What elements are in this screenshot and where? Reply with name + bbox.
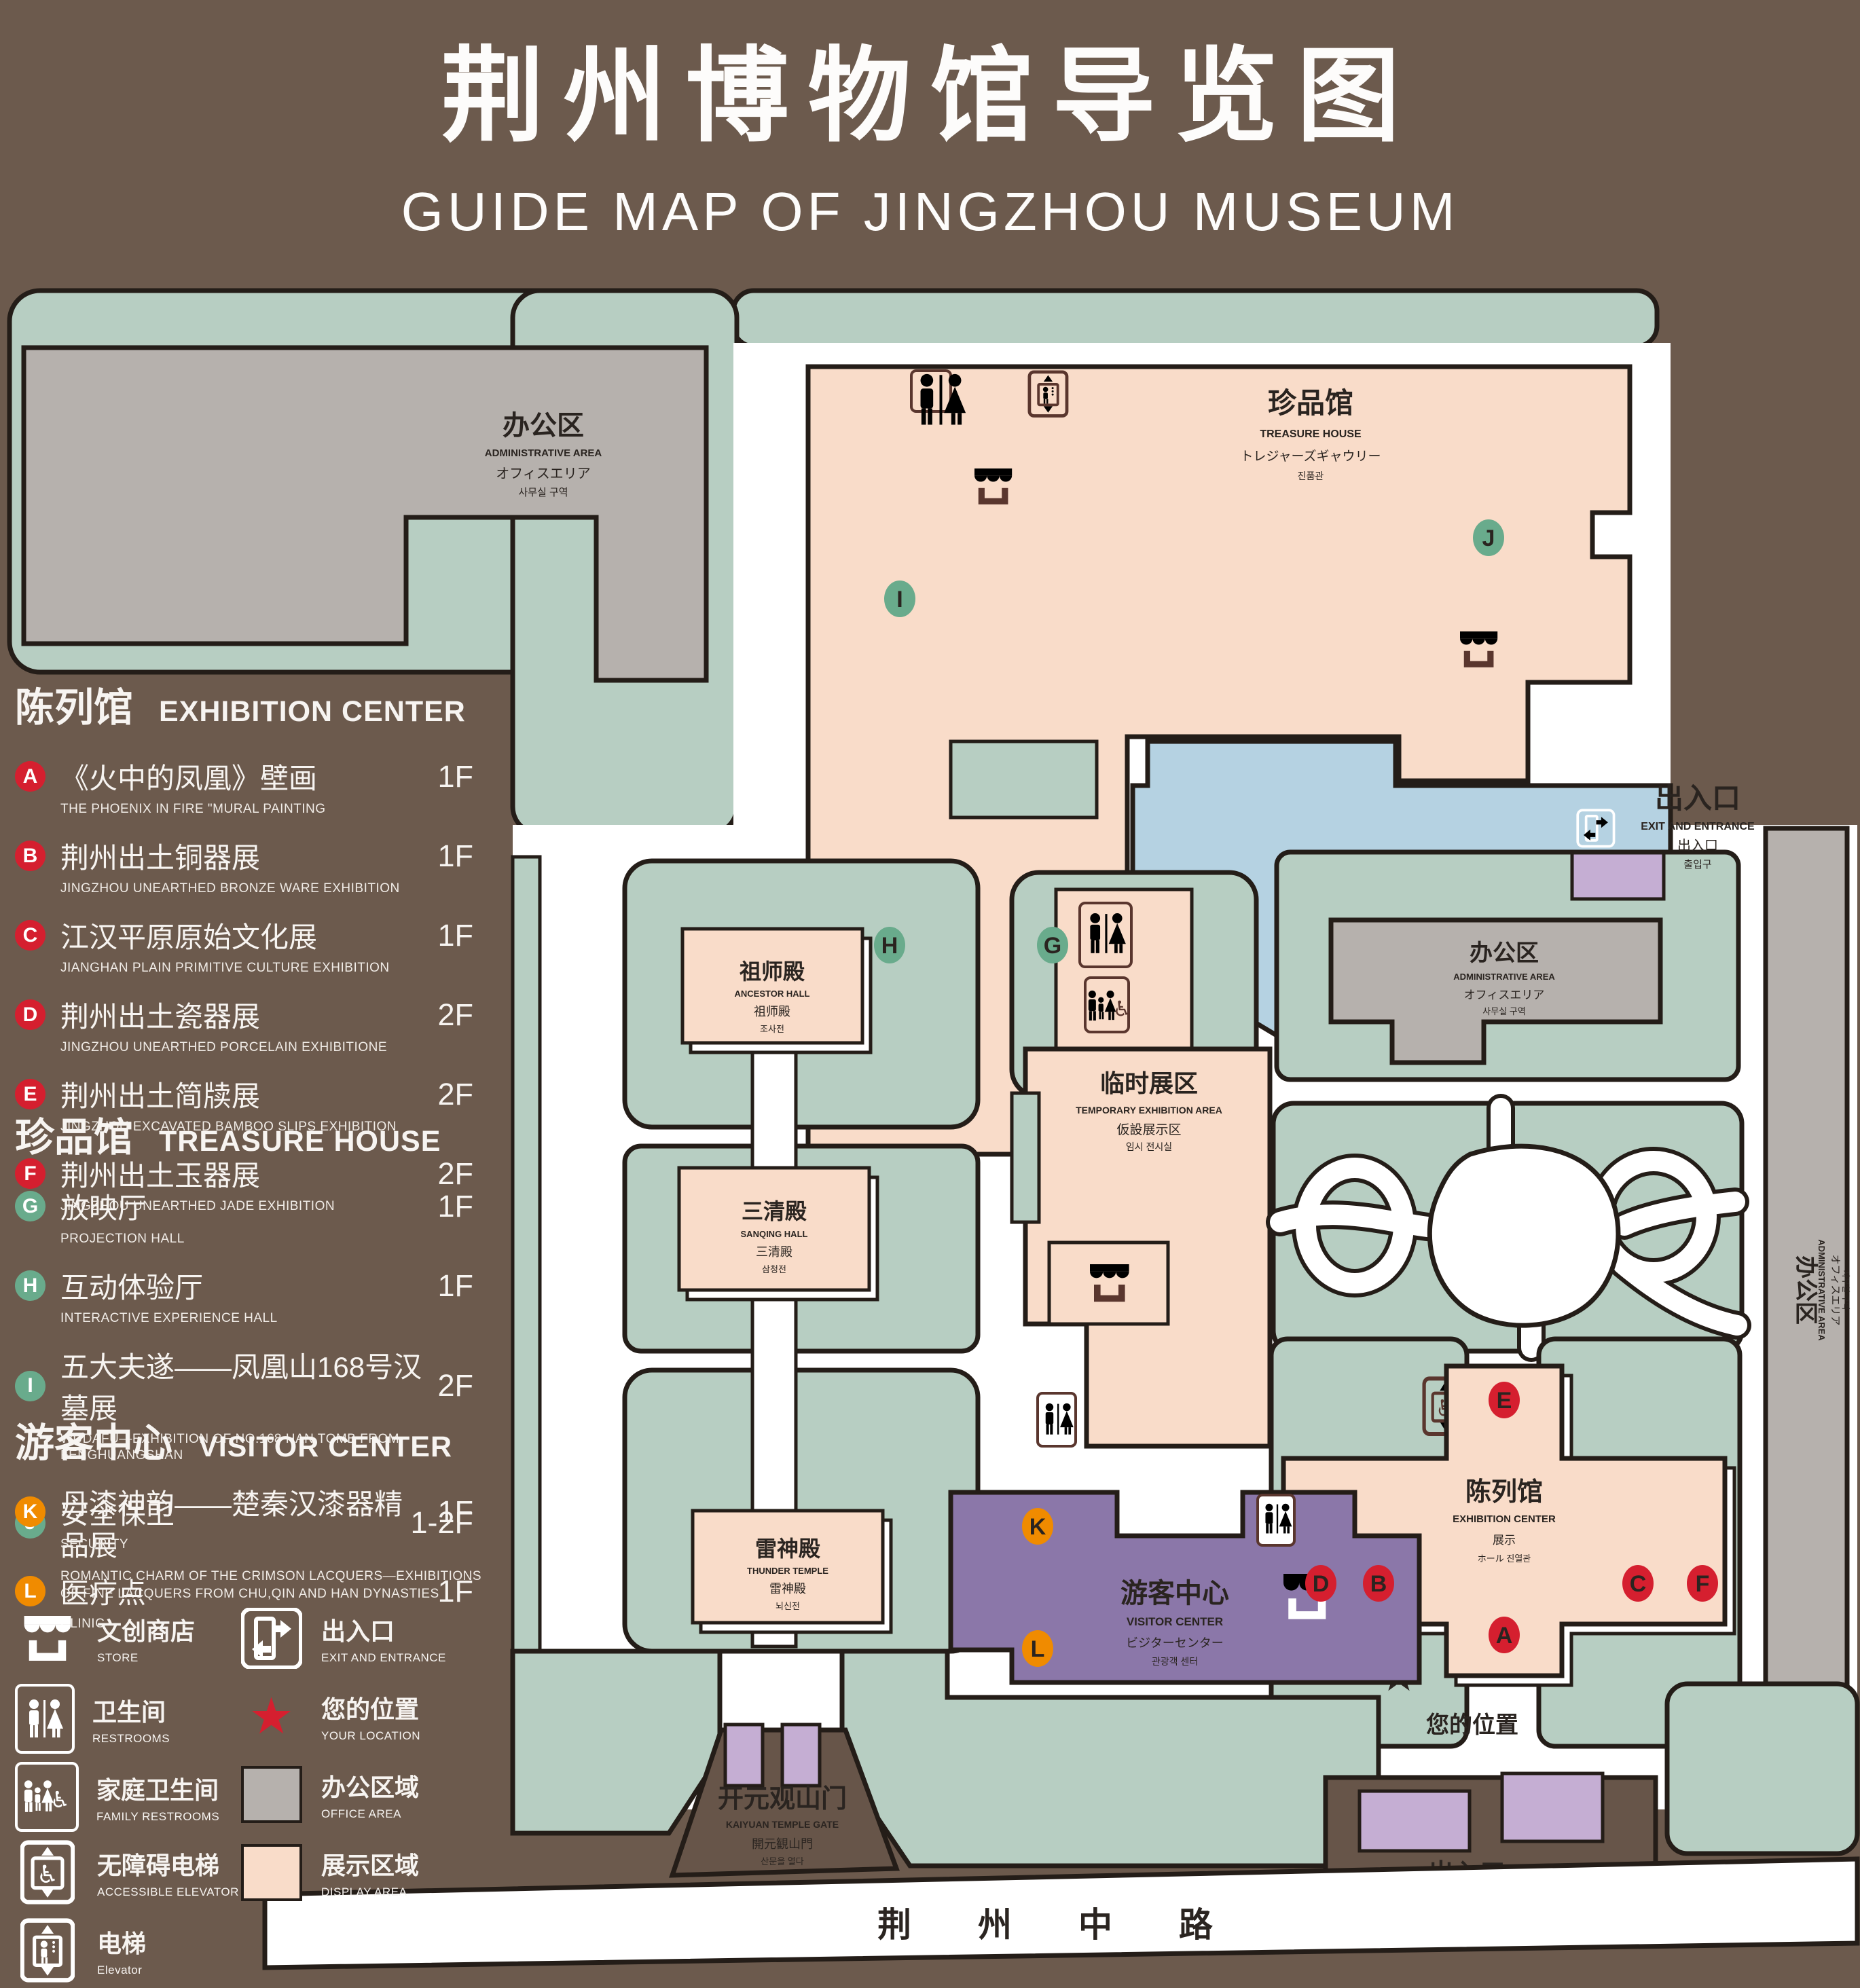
svg-text:C: C: [1630, 1571, 1647, 1597]
sanqing-en: SANQING HALL: [741, 1229, 808, 1239]
legend-item-K: K 安全保卫 1F SECURITY: [15, 1491, 521, 1553]
legend-sec3-zh: 游客中心: [15, 1411, 172, 1468]
treasure-kr: 진품관: [1298, 471, 1324, 481]
legend-item-C: C 江汉平原原始文化展 1F JIANGHAN PLAIN PRIMITIVE …: [15, 915, 521, 976]
marker-B: B: [1363, 1565, 1394, 1602]
exhibition-en: EXHIBITION CENTER: [1453, 1513, 1556, 1525]
legend-display-area: 展示区域DISPLAY AREA: [239, 1840, 419, 1904]
legend-icons: 文创商店STORE 出入口EXIT AND ENTRANCE 卫生间RESTRO…: [15, 1606, 521, 1986]
legend-exit: 出入口EXIT AND ENTRANCE: [239, 1606, 446, 1670]
marker-L: L: [1022, 1630, 1053, 1667]
ancestor-zh: 祖师殿: [740, 959, 805, 984]
garden: [1273, 1103, 1742, 1351]
marker-K: K: [1022, 1508, 1053, 1545]
temporary-kr: 임시 전시실: [1126, 1141, 1172, 1152]
svg-text:G: G: [1044, 933, 1061, 959]
svg-text:D: D: [1313, 1571, 1330, 1597]
admin-right-zh: 办公区: [1470, 940, 1539, 966]
garden-pond-white: [1429, 1146, 1618, 1325]
treasure-en: TREASURE HOUSE: [1260, 428, 1362, 440]
thunder-zh: 雷神殿: [755, 1536, 820, 1561]
ancestor-zh2: 祖师殿: [754, 1005, 790, 1018]
visitor-zh: 游客中心: [1120, 1579, 1229, 1608]
visitor-kr: 관광객 센터: [1152, 1656, 1198, 1667]
thunder-en: THUNDER TEMPLE: [747, 1566, 828, 1576]
temporary-zh: 临时展区: [1100, 1069, 1198, 1097]
admin-right-jp: オフィスエリア: [1464, 989, 1545, 1001]
marker-G: G: [1037, 927, 1068, 963]
svg-text:K: K: [1029, 1514, 1046, 1540]
exhibition-zh2: 展示: [1493, 1534, 1516, 1547]
badge-D: D: [15, 999, 45, 1030]
temporary-green-notch: [1012, 1093, 1039, 1222]
legend-store: 文创商店STORE: [15, 1606, 195, 1670]
legend-office-area: 办公区域OFFICE AREA: [239, 1762, 419, 1826]
gate-jp: 開元観山門: [752, 1837, 813, 1851]
marker-H: H: [874, 927, 905, 963]
right-admin-area: 办公区 ADMINISTRATIVE AREA オフィスエリア 사무실 구역: [1277, 852, 1738, 1080]
admin-tl-jp: オフィスエリア: [496, 466, 591, 481]
svg-text:I: I: [896, 587, 902, 612]
treasure-jp: トレジャーズギャウリー: [1240, 449, 1381, 464]
admin-topleft-shape: [24, 348, 706, 680]
admin-tl-en: ADMINISTRATIVE AREA: [485, 447, 602, 459]
badge-L: L: [15, 1576, 45, 1606]
svg-text:A: A: [1496, 1623, 1513, 1649]
restroom-block: [1056, 889, 1192, 1059]
exit-tr-zh: 出入口: [1655, 782, 1740, 814]
legend-item-D: D 荆州出土瓷器展 2F JINGZHOU UNEARTHED PORCELAI…: [15, 994, 521, 1056]
marker-A: A: [1489, 1617, 1520, 1653]
badge-G: G: [15, 1191, 45, 1221]
admin-strip: 办公区 ADMINISTRATIVE AREA オフィスエリア 사무실 구역: [1766, 828, 1850, 1755]
temporary-en: TEMPORARY EXHIBITION AREA: [1076, 1105, 1222, 1116]
sanqing-zh: 三清殿: [742, 1199, 807, 1223]
legend-elevator: 电梯Elevator: [15, 1918, 146, 1983]
location-star-icon: ★: [249, 1691, 293, 1742]
admin-strip-kr: 사무실 구역: [1841, 1270, 1850, 1310]
admin-area-topleft-building: 办公区 ADMINISTRATIVE AREA オフィスエリア 사무실 구역: [24, 348, 706, 680]
admin-strip-jp: オフィスエリア: [1829, 1255, 1841, 1326]
thunder-zh2: 雷神殿: [769, 1582, 806, 1596]
badge-K: K: [15, 1496, 45, 1527]
admin-strip-en: ADMINISTRATIVE AREA: [1817, 1239, 1827, 1341]
legend-restrooms: 卫生间RESTROOMS: [15, 1684, 170, 1754]
badge-I: I: [15, 1371, 45, 1401]
legend-sec1-zh: 陈列馆: [15, 676, 133, 733]
your-location-label: 您的位置: [1426, 1712, 1518, 1738]
exit-tr-gate-purple: [1572, 853, 1664, 899]
sanqing-zh2: 三清殿: [756, 1245, 792, 1259]
legend-family-restrooms: 家庭卫生间FAMILY RESTROOMS: [15, 1762, 219, 1832]
temporary-jp: 仮設展示区: [1116, 1122, 1181, 1137]
green-gate-left: [513, 1651, 720, 1833]
display-area-swatch: [241, 1844, 302, 1901]
marker-D: D: [1305, 1565, 1336, 1602]
legend-item-H: H 互动体验厅 1F INTERACTIVE EXPERIENCE HALL: [15, 1265, 521, 1327]
exhibition-l4: ホール 진열관: [1478, 1553, 1531, 1564]
legend-accessible-elevator: 无障碍电梯ACCESSIBLE ELEVATOR: [15, 1840, 239, 1904]
thunder-kr: 뇌신전: [776, 1601, 800, 1611]
marker-I: I: [884, 581, 915, 617]
svg-text:B: B: [1370, 1571, 1387, 1597]
legend-your-location: ★ 您的位置YOUR LOCATION: [239, 1684, 420, 1748]
marker-E: E: [1489, 1382, 1520, 1418]
exit-bottom-purple-left: [1360, 1791, 1470, 1851]
green-top-band: [733, 291, 1657, 346]
svg-text:H: H: [881, 933, 898, 959]
legend-sec2-zh: 珍品馆: [15, 1105, 133, 1162]
svg-text:L: L: [1031, 1636, 1045, 1662]
legend-sec2-en: TREASURE HOUSE: [159, 1125, 441, 1158]
sanqing-kr: 삼청전: [762, 1264, 786, 1274]
office-area-swatch: [241, 1766, 302, 1823]
badge-H: H: [15, 1270, 45, 1301]
treasure-zh: 珍品馆: [1268, 387, 1353, 419]
marker-F: F: [1687, 1565, 1718, 1602]
svg-text:F: F: [1696, 1571, 1710, 1597]
badge-B: B: [15, 841, 45, 871]
exit-tr-en: EXIT AND ENTRANCE: [1641, 821, 1755, 832]
gate-pillar-right: [782, 1725, 820, 1786]
admin-tl-kr: 사무실 구역: [518, 487, 568, 498]
exit-tr-zh2: 出入口: [1677, 838, 1718, 853]
exit-tr-kr: 출입구: [1683, 859, 1711, 870]
road-label: 荆 州 中 路: [877, 1906, 1241, 1944]
admin-strip-zh: 办公区: [1793, 1255, 1819, 1325]
ancestor-en: ANCESTOR HALL: [735, 989, 810, 999]
marker-J: J: [1473, 519, 1504, 556]
exhibition-zh: 陈列馆: [1465, 1478, 1543, 1507]
exit-bottom-purple-right: [1502, 1773, 1603, 1841]
svg-text:E: E: [1497, 1388, 1512, 1414]
badge-C: C: [15, 920, 45, 951]
gate-pillar-left: [725, 1725, 763, 1786]
store-block: [1049, 1242, 1168, 1324]
svg-text:J: J: [1482, 526, 1495, 551]
gate-zh: 开元观山门: [718, 1785, 847, 1814]
admin-tl-zh: 办公区: [503, 411, 584, 441]
visitor-en: VISITOR CENTER: [1127, 1615, 1223, 1628]
gate-en: KAIYUAN TEMPLE GATE: [726, 1819, 839, 1830]
badge-A: A: [15, 761, 45, 792]
gate-kr: 산문을 열다: [761, 1856, 803, 1866]
legend-sec3-en: VISITOR CENTER: [198, 1431, 452, 1464]
legend-item-B: B 荆州出土铜器展 1F JINGZHOU UNEARTHED BRONZE W…: [15, 835, 521, 897]
ancestor-kr: 조사전: [760, 1024, 784, 1034]
marker-C: C: [1622, 1565, 1654, 1602]
green-block-under-treasure: [951, 741, 1097, 817]
admin-right-en: ADMINISTRATIVE AREA: [1453, 972, 1555, 982]
legend-item-A: A 《火中的凤凰》壁画 1F THE PHOENIX IN FIRE "MURA…: [15, 756, 521, 817]
visitor-jp: ビジターセンター: [1126, 1636, 1224, 1650]
legend-sec1-en: EXHIBITION CENTER: [159, 695, 466, 729]
admin-right-kr: 사무실 구역: [1482, 1006, 1525, 1016]
legend-item-G: G 放映厅 1F PROJECTION HALL: [15, 1185, 521, 1247]
green-bottom-right: [1667, 1684, 1857, 1854]
